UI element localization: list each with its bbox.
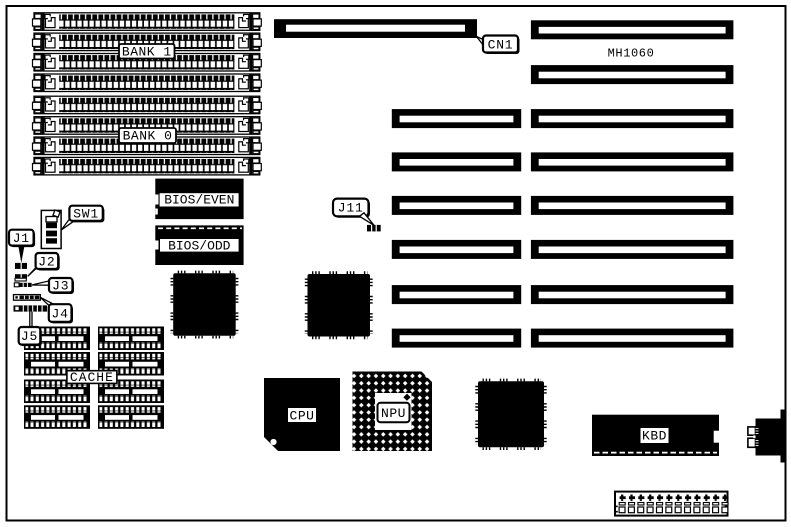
svg-text:BIOS/EVEN: BIOS/EVEN xyxy=(164,193,234,208)
svg-text:BANK 1: BANK 1 xyxy=(122,45,172,60)
svg-text:CACHE: CACHE xyxy=(70,370,114,385)
svg-text:J2: J2 xyxy=(38,254,55,269)
svg-text:SW1: SW1 xyxy=(73,207,99,222)
svg-text:CPU: CPU xyxy=(290,408,315,423)
svg-text:J3: J3 xyxy=(52,278,69,293)
svg-text:CN1: CN1 xyxy=(488,37,514,52)
svg-text:J11: J11 xyxy=(338,201,364,216)
svg-text:MH1060: MH1060 xyxy=(608,47,655,61)
svg-text:J1: J1 xyxy=(13,231,30,246)
svg-text:J4: J4 xyxy=(51,306,68,321)
svg-text:NPU: NPU xyxy=(381,406,406,421)
svg-text:KBD: KBD xyxy=(642,429,667,444)
svg-text:BANK 0: BANK 0 xyxy=(123,129,173,144)
svg-text:J5: J5 xyxy=(21,329,38,344)
svg-text:BIOS/ODD: BIOS/ODD xyxy=(168,238,231,253)
